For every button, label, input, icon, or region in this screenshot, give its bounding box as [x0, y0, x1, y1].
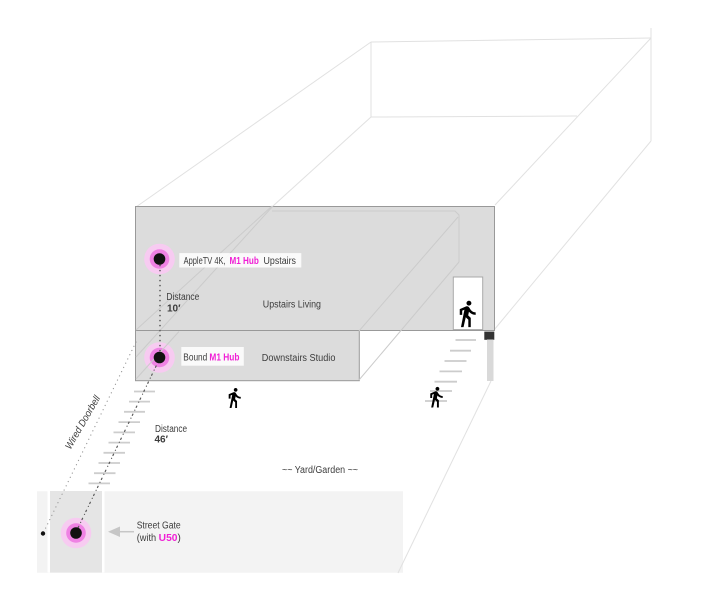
- svg-text:~~ Yard/Garden ~~: ~~ Yard/Garden ~~: [282, 465, 358, 476]
- svg-text:Downstairs Studio: Downstairs Studio: [262, 353, 336, 364]
- svg-text:AppleTV 4K,: AppleTV 4K,: [184, 256, 226, 267]
- svg-text:46′: 46′: [155, 434, 169, 445]
- svg-text:M1 Hub: M1 Hub: [209, 353, 239, 364]
- svg-text:M1 Hub: M1 Hub: [230, 256, 259, 267]
- svg-text:10′: 10′: [167, 303, 181, 314]
- svg-text:Distance: Distance: [166, 292, 199, 303]
- svg-text:): ): [178, 533, 181, 544]
- svg-text:Street Gate: Street Gate: [137, 521, 181, 532]
- svg-text:Upstairs Living: Upstairs Living: [263, 299, 321, 310]
- svg-text:U50: U50: [159, 533, 178, 544]
- svg-text:(with: (with: [137, 533, 159, 544]
- svg-text:Upstairs: Upstairs: [264, 256, 297, 267]
- svg-text:Bound: Bound: [183, 353, 207, 364]
